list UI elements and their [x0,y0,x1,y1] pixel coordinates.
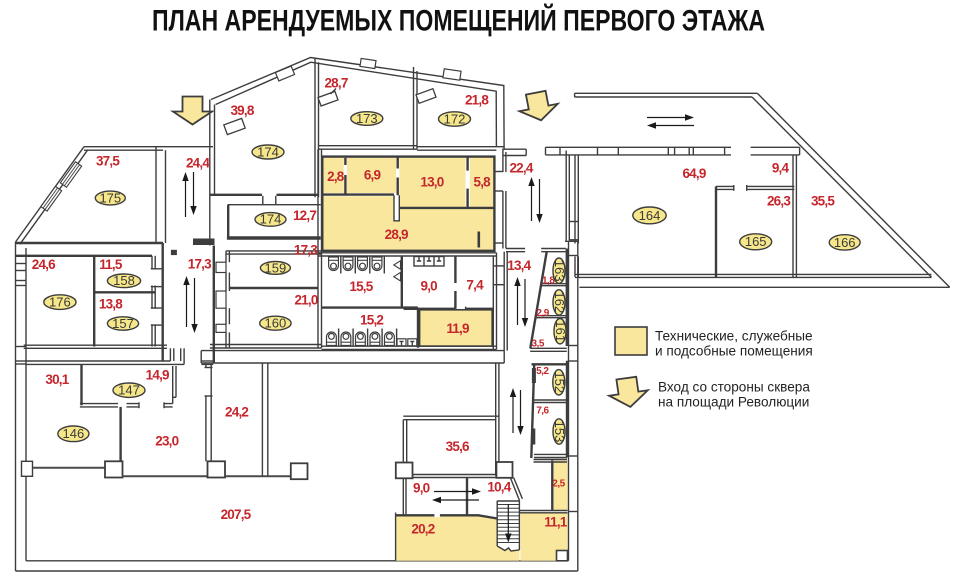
svg-text:13,0: 13,0 [420,175,443,190]
svg-text:2,9: 2,9 [536,308,549,319]
svg-text:6,9: 6,9 [364,167,381,182]
svg-text:17,3: 17,3 [188,256,212,271]
svg-text:163: 163 [552,260,567,282]
svg-text:21,0: 21,0 [294,292,317,307]
svg-text:5,2: 5,2 [536,366,549,377]
svg-text:64,9: 64,9 [682,166,705,181]
svg-text:9,0: 9,0 [413,480,430,495]
svg-text:2,8: 2,8 [327,169,345,184]
svg-text:174: 174 [257,144,279,159]
svg-text:165: 165 [745,234,767,249]
svg-text:35,5: 35,5 [811,193,835,208]
svg-text:13,8: 13,8 [99,297,123,312]
svg-text:12,7: 12,7 [293,208,316,223]
svg-text:146: 146 [63,426,85,441]
svg-text:7,4: 7,4 [466,277,484,292]
svg-text:176: 176 [49,295,71,310]
svg-text:173: 173 [356,111,378,126]
svg-text:15,5: 15,5 [349,279,373,294]
svg-text:9,4: 9,4 [772,161,790,176]
svg-text:13,4: 13,4 [507,258,531,273]
svg-text:Технические, служебные: Технические, служебные [655,329,813,344]
svg-text:162: 162 [552,292,567,314]
svg-text:21,8: 21,8 [465,93,489,108]
svg-text:28,7: 28,7 [324,76,347,91]
svg-text:175: 175 [99,190,121,205]
svg-text:ПЛАН АРЕНДУЕМЫХ ПОМЕЩЕНИЙ ПЕРВ: ПЛАН АРЕНДУЕМЫХ ПОМЕЩЕНИЙ ПЕРВОГО ЭТАЖА [152,4,765,38]
svg-text:164: 164 [639,208,661,223]
svg-text:2,5: 2,5 [552,479,565,490]
svg-text:15,2: 15,2 [360,313,383,328]
svg-text:24,2: 24,2 [225,404,248,419]
svg-text:37,5: 37,5 [96,154,120,169]
svg-text:и подсобные помещения: и подсобные помещения [655,343,813,358]
svg-text:14,9: 14,9 [146,368,169,383]
svg-text:11,1: 11,1 [544,515,568,530]
svg-text:172: 172 [444,111,466,126]
svg-text:35,6: 35,6 [446,439,470,454]
svg-text:28,9: 28,9 [385,227,408,242]
svg-text:166: 166 [834,235,856,250]
svg-text:7,6: 7,6 [536,406,549,417]
svg-text:на площади Революции: на площади Революции [658,395,809,410]
svg-text:Вход со стороны сквера: Вход со стороны сквера [658,380,810,395]
svg-text:30,1: 30,1 [45,372,69,387]
svg-text:5,8: 5,8 [474,175,492,190]
svg-text:39,8: 39,8 [230,103,254,118]
svg-text:160: 160 [265,316,287,331]
svg-text:10,4: 10,4 [487,480,511,495]
svg-text:207,5: 207,5 [221,507,252,522]
svg-text:11,5: 11,5 [99,257,123,272]
svg-text:161: 161 [553,320,568,342]
svg-text:153: 153 [552,421,567,443]
svg-text:158: 158 [113,273,135,288]
svg-text:17,3: 17,3 [294,243,318,258]
svg-text:20,2: 20,2 [411,522,434,537]
svg-text:157: 157 [112,316,134,331]
svg-text:23,0: 23,0 [155,434,178,449]
svg-text:24,6: 24,6 [32,257,56,272]
svg-text:22,4: 22,4 [509,161,533,176]
svg-text:147: 147 [118,383,140,398]
svg-text:174: 174 [260,212,282,227]
svg-text:9,0: 9,0 [421,279,438,294]
svg-text:11,9: 11,9 [446,321,469,336]
svg-text:152: 152 [552,371,567,393]
svg-text:26,3: 26,3 [767,193,791,208]
svg-text:24,4: 24,4 [186,156,210,171]
svg-text:159: 159 [265,260,287,275]
